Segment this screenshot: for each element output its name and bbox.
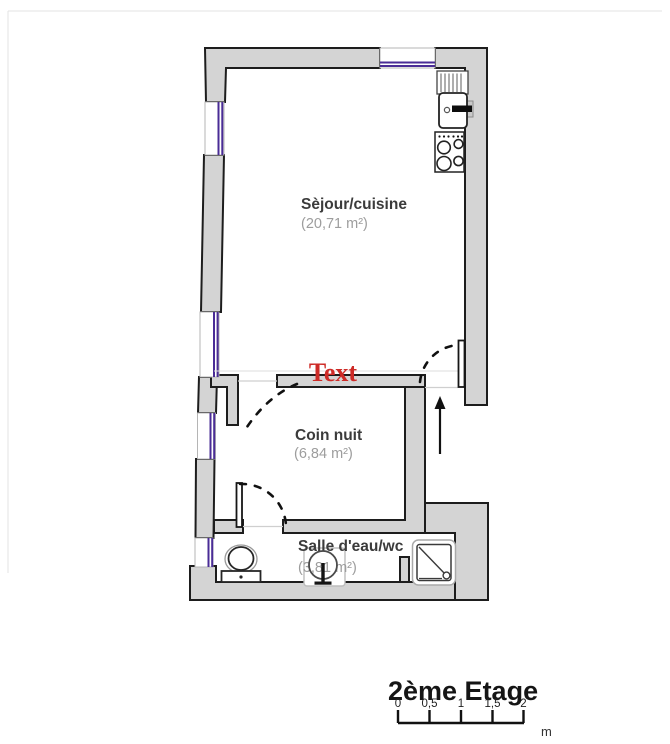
room-label-coin-nuit: Coin nuit [295,427,362,444]
room-label-sejour: Sèjour/cuisine [301,196,407,213]
bathroom-door-swing-arc [240,484,286,525]
room-area-sejour: (20,71 m²) [301,216,368,232]
window-left-1 [205,102,224,155]
room-label-bathroom: Salle d'eau/wc [298,538,404,555]
toilet-icon [222,545,261,582]
room-area-coin-nuit: (6,84 m²) [294,446,353,462]
window-left-2 [200,312,219,377]
floor-plan-svg: Salle d'eau/wc (3,81 m²) Sèjour/cuisine … [0,0,670,744]
coin-nuit-door-swing-arc [247,384,297,427]
scale-tick-3: 1,5 [485,698,501,710]
annotation-text: Text [309,358,357,387]
stove-icon [435,132,464,172]
entrance-arrow-icon [435,396,446,454]
wall [196,459,215,538]
room-area-bathroom: (3,81 m²) [298,560,357,576]
window-left-4 [195,538,213,567]
scale-tick-4: 2 [520,698,526,710]
window-top [380,48,435,68]
wall [400,557,409,582]
shower-icon [413,540,456,585]
windows [195,48,435,567]
faucet [452,106,472,113]
scale-tick-2: 1 [458,698,464,710]
scale-unit: m [541,724,552,739]
scale-tick-0: 0 [395,698,401,710]
wall [201,155,224,312]
walls [190,48,488,600]
wall [205,48,380,102]
window-left-3 [198,413,216,459]
floor-plan-page: Salle d'eau/wc (3,81 m²) Sèjour/cuisine … [0,0,670,744]
kitchen-sink-icon [437,71,473,128]
entrance-door-leaf [459,341,465,388]
scale-tick-1: 0,5 [422,698,438,710]
bathroom-door-leaf [237,483,243,527]
